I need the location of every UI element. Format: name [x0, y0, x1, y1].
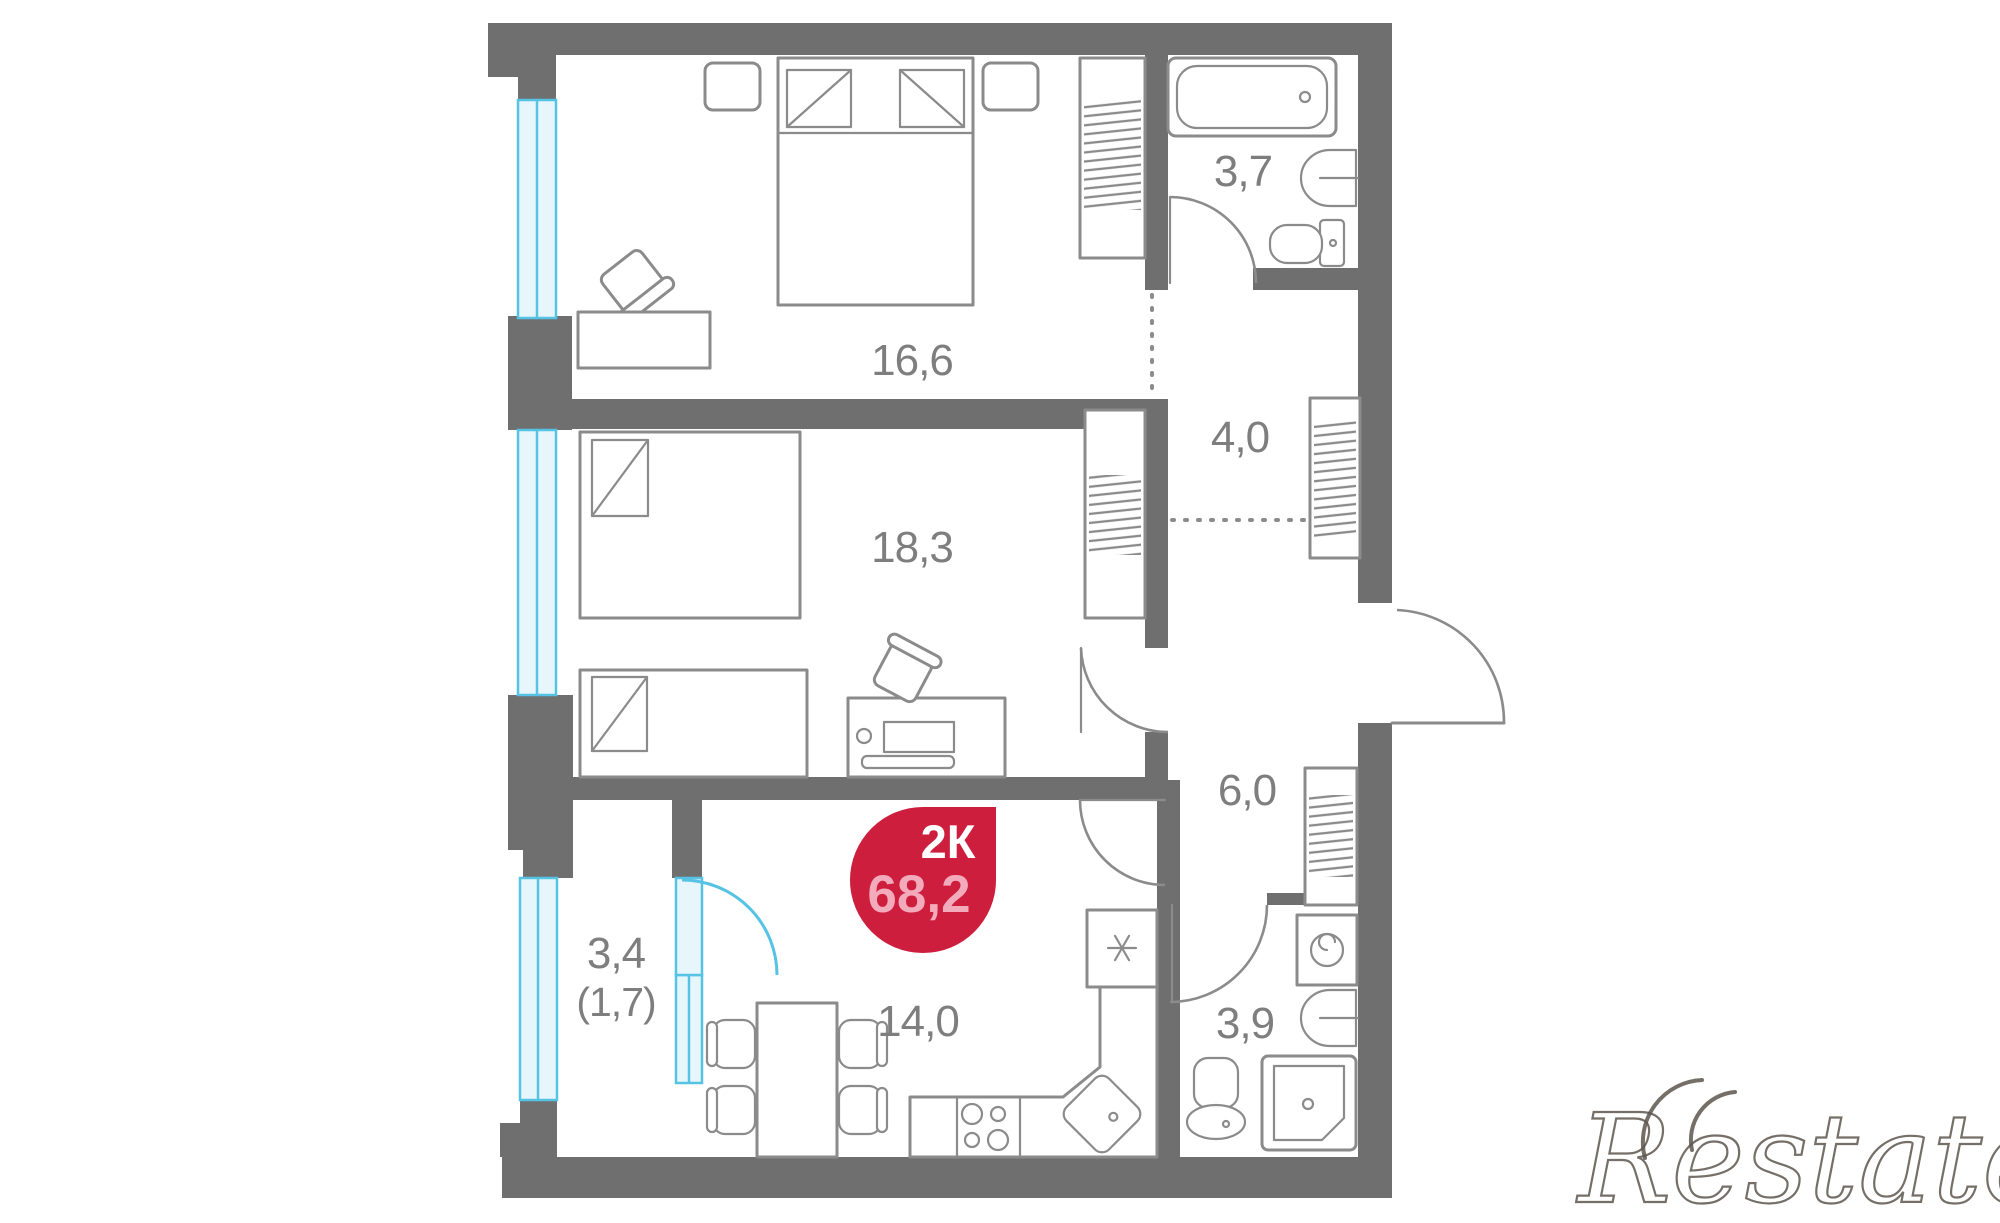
- bathroom-2-door: [1170, 905, 1267, 1002]
- washing-machine: [1297, 915, 1357, 985]
- wardrobe-bedroom: [1080, 58, 1145, 258]
- balcony-door: [676, 878, 777, 975]
- nightstand-right: [983, 63, 1038, 110]
- sink: [1301, 150, 1358, 206]
- window-balcony-right: [676, 975, 702, 1083]
- room-label-kitchen: 14,0: [877, 997, 959, 1046]
- wardrobe-c: [1305, 768, 1357, 905]
- room-label-bathroom-2: 3,9: [1216, 999, 1274, 1048]
- window-bedroom-2: [518, 430, 556, 695]
- desk: [848, 698, 1005, 777]
- dresser: [578, 312, 710, 368]
- area-badge: 2К 68,2: [850, 807, 996, 953]
- window-balcony-left: [520, 878, 557, 1100]
- bathtub: [1168, 58, 1336, 136]
- room-label-wardrobe-hall: 4,0: [1211, 413, 1269, 462]
- window-bedroom: [518, 100, 556, 318]
- nightstand-left: [705, 63, 760, 110]
- room-bedroom: 16,6: [578, 58, 1145, 385]
- room-bedroom-2: 18,3: [580, 410, 1145, 777]
- dining-table: [757, 1003, 837, 1157]
- shower: [1262, 1056, 1356, 1150]
- bedroom-2-door: [1081, 648, 1168, 732]
- room-label-hallway: 6,0: [1218, 766, 1276, 815]
- room-label-bedroom: 16,6: [871, 336, 953, 385]
- badge-type-label: 2К: [921, 815, 976, 868]
- double-bed: [778, 58, 973, 305]
- desk-chair: [867, 632, 944, 707]
- wardrobe-a: [1085, 410, 1145, 618]
- badge-area-label: 68,2: [867, 865, 970, 924]
- wardrobe-b: [1310, 398, 1360, 558]
- floor-plan: 16,6 18,3: [0, 0, 2000, 1223]
- room-bathroom-2: 3,9: [1187, 915, 1358, 1150]
- sink-2: [1301, 990, 1358, 1046]
- toilet: [1270, 220, 1344, 266]
- bed-single-2: [580, 670, 807, 777]
- floor-plan-page: 16,6 18,3: [0, 0, 2000, 1223]
- bathroom-door: [1170, 197, 1256, 283]
- entrance-door: [1392, 610, 1504, 723]
- watermark-text: Restate: [1576, 1088, 2000, 1223]
- room-label-balcony-coef: (1,7): [576, 979, 655, 1025]
- room-bathroom: 3,7: [1168, 58, 1358, 266]
- toilet-2: [1187, 1058, 1245, 1139]
- room-label-balcony: 3,4: [587, 929, 646, 978]
- watermark: Restate: [1576, 1080, 2000, 1223]
- room-label-bedroom-2: 18,3: [871, 523, 953, 572]
- kitchen-door: [1080, 800, 1165, 885]
- room-label-bathroom: 3,7: [1214, 147, 1272, 196]
- zone-boundaries: [1152, 295, 1305, 520]
- room-balcony: 3,4 (1,7): [576, 929, 655, 1025]
- room-hallway: 6,0: [1218, 766, 1357, 905]
- bed-single-1: [580, 432, 800, 618]
- fridge: [1087, 910, 1157, 987]
- room-wardrobe-hall: 4,0: [1211, 398, 1360, 558]
